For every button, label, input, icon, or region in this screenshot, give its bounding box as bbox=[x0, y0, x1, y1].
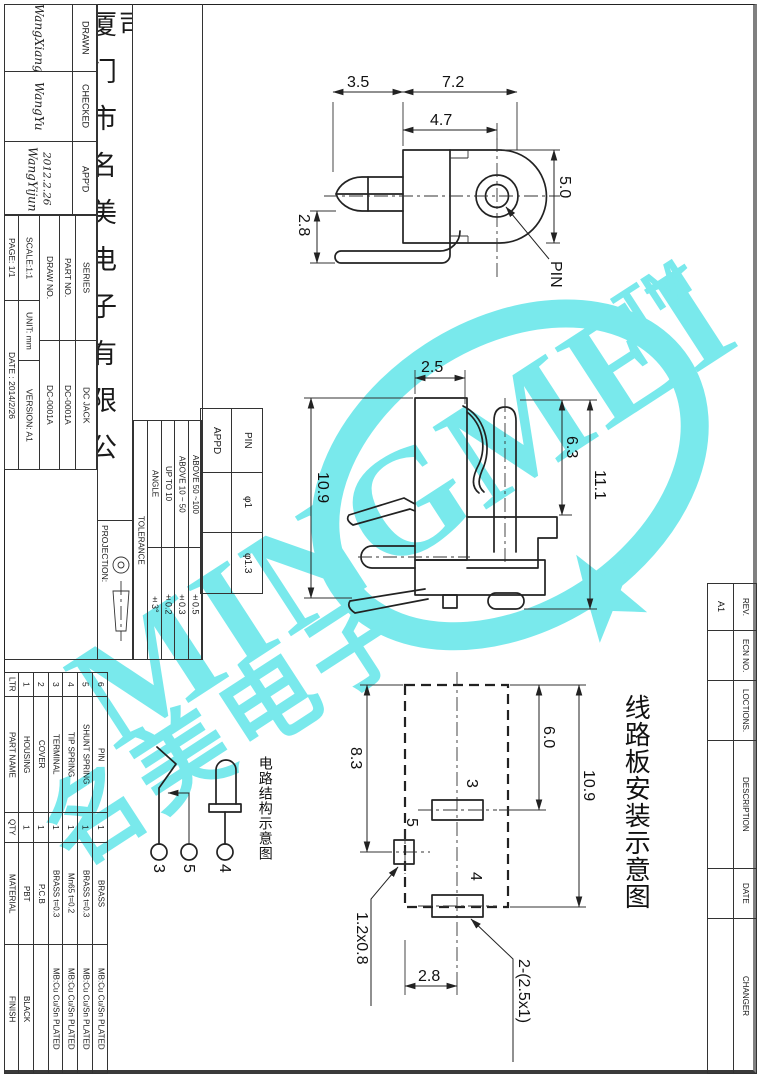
bom-ltr: 6 bbox=[96, 682, 105, 687]
checked-label: CHECKED bbox=[80, 84, 89, 128]
pin-diameter-table: APPD PIN φ1 φ1.3 bbox=[200, 408, 263, 594]
version-field: VERSION: A1 bbox=[25, 389, 34, 442]
series-value: DC JACK bbox=[82, 387, 91, 423]
bom-part-name: TERMINAL bbox=[51, 734, 59, 774]
bom-table: LTR 1 2 3 4 5 6 PART NAME HOUSING COVER … bbox=[4, 672, 108, 1074]
revision-header: DATE bbox=[741, 883, 749, 904]
drawn-label: DRAWN bbox=[80, 21, 89, 55]
pin-diameter-value: φ1 bbox=[242, 496, 253, 508]
bom-part-name: PIN bbox=[96, 748, 104, 761]
signature-block: WangXiang DRAWN WangYu CHECKED WangYijun… bbox=[4, 4, 97, 215]
tolerance-row-label: ABOVE 50 ~100 bbox=[191, 455, 199, 514]
tolerance-row-value: ±0.2 bbox=[163, 592, 172, 615]
bom-part-name: SHUNT SPRING bbox=[81, 724, 89, 784]
bom-part-name: HOUSING bbox=[22, 736, 30, 773]
bom-qty: 1 bbox=[66, 825, 75, 830]
bom-material: P.C.B bbox=[37, 884, 45, 904]
bom-finish: BLACK bbox=[22, 996, 30, 1022]
bom-material: BRASS bbox=[96, 880, 104, 907]
tolerance-row-value: ±0.3 bbox=[177, 592, 186, 615]
bom-qty: 1 bbox=[36, 825, 45, 830]
tolerance-row-value: ±3° bbox=[150, 594, 159, 613]
bom-ltr: 5 bbox=[81, 682, 90, 687]
bom-qty: 1 bbox=[51, 825, 60, 830]
part-no-label: PART NO. bbox=[63, 258, 72, 297]
projection-symbol-icon bbox=[109, 553, 133, 653]
bom-header-qty: QTY bbox=[7, 819, 15, 835]
tolerance-row-label: UP TO 10 bbox=[164, 466, 172, 501]
revision-header: REV. bbox=[741, 598, 749, 616]
checked-signature: WangYu bbox=[32, 82, 45, 130]
bom-finish: MB:Cu Cu/Sn PLATED bbox=[51, 968, 59, 1050]
pin-diameter-value: φ1.3 bbox=[242, 553, 253, 573]
bom-header-part-name: PART NAME bbox=[7, 732, 15, 778]
revision-header: ECN NO. bbox=[741, 639, 749, 672]
schematic-caption: 电路结构示意图 bbox=[258, 756, 273, 861]
bom-finish: MB:Cu Cu/Sn PLATED bbox=[81, 968, 89, 1050]
pcb-view-caption: 线路板安装示意图 bbox=[622, 694, 649, 910]
company-name: 厦门市名美电子有限公司 bbox=[97, 4, 133, 520]
bom-finish: MB:Cu Cu/Sn PLATED bbox=[96, 968, 104, 1050]
bom-ltr: 3 bbox=[51, 682, 60, 687]
series-label: SERIES bbox=[82, 262, 91, 293]
tolerance-block: TOLERANCE ANGLE ±3° UP TO 10 ±0.2 ABOVE … bbox=[133, 420, 202, 660]
tolerance-row-value: ±0.5 bbox=[190, 592, 199, 615]
revision-header: CHANGER bbox=[741, 976, 749, 1016]
title-fields-block: PAGE: 1/1 DATE : 2014/2/26 SCALE:1:1 UNI… bbox=[4, 215, 97, 470]
bom-material: BRASS t=0.3 bbox=[51, 870, 59, 917]
title-block-bottom-edge bbox=[4, 659, 203, 660]
appd-label: APP'D bbox=[80, 166, 89, 192]
bom-header-material: MATERIAL bbox=[7, 874, 15, 913]
bom-header-ltr: LTR bbox=[7, 677, 15, 692]
page-field: PAGE: 1/1 bbox=[7, 238, 16, 278]
bom-qty: 1 bbox=[96, 825, 105, 830]
bom-part-name: COVER bbox=[37, 740, 45, 768]
bom-ltr: 1 bbox=[21, 682, 30, 687]
appd-column-header: APPD bbox=[211, 427, 222, 454]
appd-date: 2012.2.26 bbox=[40, 152, 51, 205]
bom-ltr: 2 bbox=[36, 682, 45, 687]
tolerance-row-label: ABOVE 10 ~ 50 bbox=[177, 456, 185, 513]
tolerance-header: TOLERANCE bbox=[136, 516, 144, 565]
revision-value: A1 bbox=[716, 601, 725, 612]
part-no-value: DC-0001A bbox=[63, 385, 72, 425]
pin-column-header: PIN bbox=[242, 432, 253, 449]
revision-header: LOCTIONS. bbox=[741, 689, 749, 732]
revision-header: DESCRIPTION bbox=[741, 777, 749, 832]
bom-part-name: TIP SPRING bbox=[66, 732, 74, 777]
bom-qty: 1 bbox=[21, 825, 30, 830]
draw-no-label: DRAW NO. bbox=[45, 256, 54, 299]
bom-material: BRASS t=0.3 bbox=[81, 870, 89, 917]
bom-ltr: 4 bbox=[66, 682, 75, 687]
unit-field: UNIT: mm bbox=[25, 312, 34, 350]
bom-qty: 1 bbox=[81, 825, 90, 830]
bom-header-finish: FINISH bbox=[7, 996, 15, 1022]
draw-no-value: DC-0001A bbox=[45, 385, 54, 425]
projection-cell: PROJECTION: bbox=[97, 520, 133, 660]
tolerance-row-label: ANGLE bbox=[150, 470, 158, 497]
appd-signature: WangYijun bbox=[26, 147, 39, 212]
projection-label: PROJECTION: bbox=[100, 525, 109, 582]
scale-field: SCALE:1:1 bbox=[25, 237, 34, 279]
drawn-signature: WangXiang bbox=[32, 5, 45, 72]
bom-material: PBT bbox=[22, 886, 30, 902]
bom-material: Mn65 t=0.2 bbox=[66, 873, 74, 913]
revision-table: A1 REV. ECN NO. LOCTIONS. DESCRIPTION DA… bbox=[707, 583, 757, 1074]
bom-finish: MB:Cu Cu/Sn PLATED bbox=[66, 968, 74, 1050]
date-field: DATE : 2014/2/26 bbox=[7, 352, 16, 419]
